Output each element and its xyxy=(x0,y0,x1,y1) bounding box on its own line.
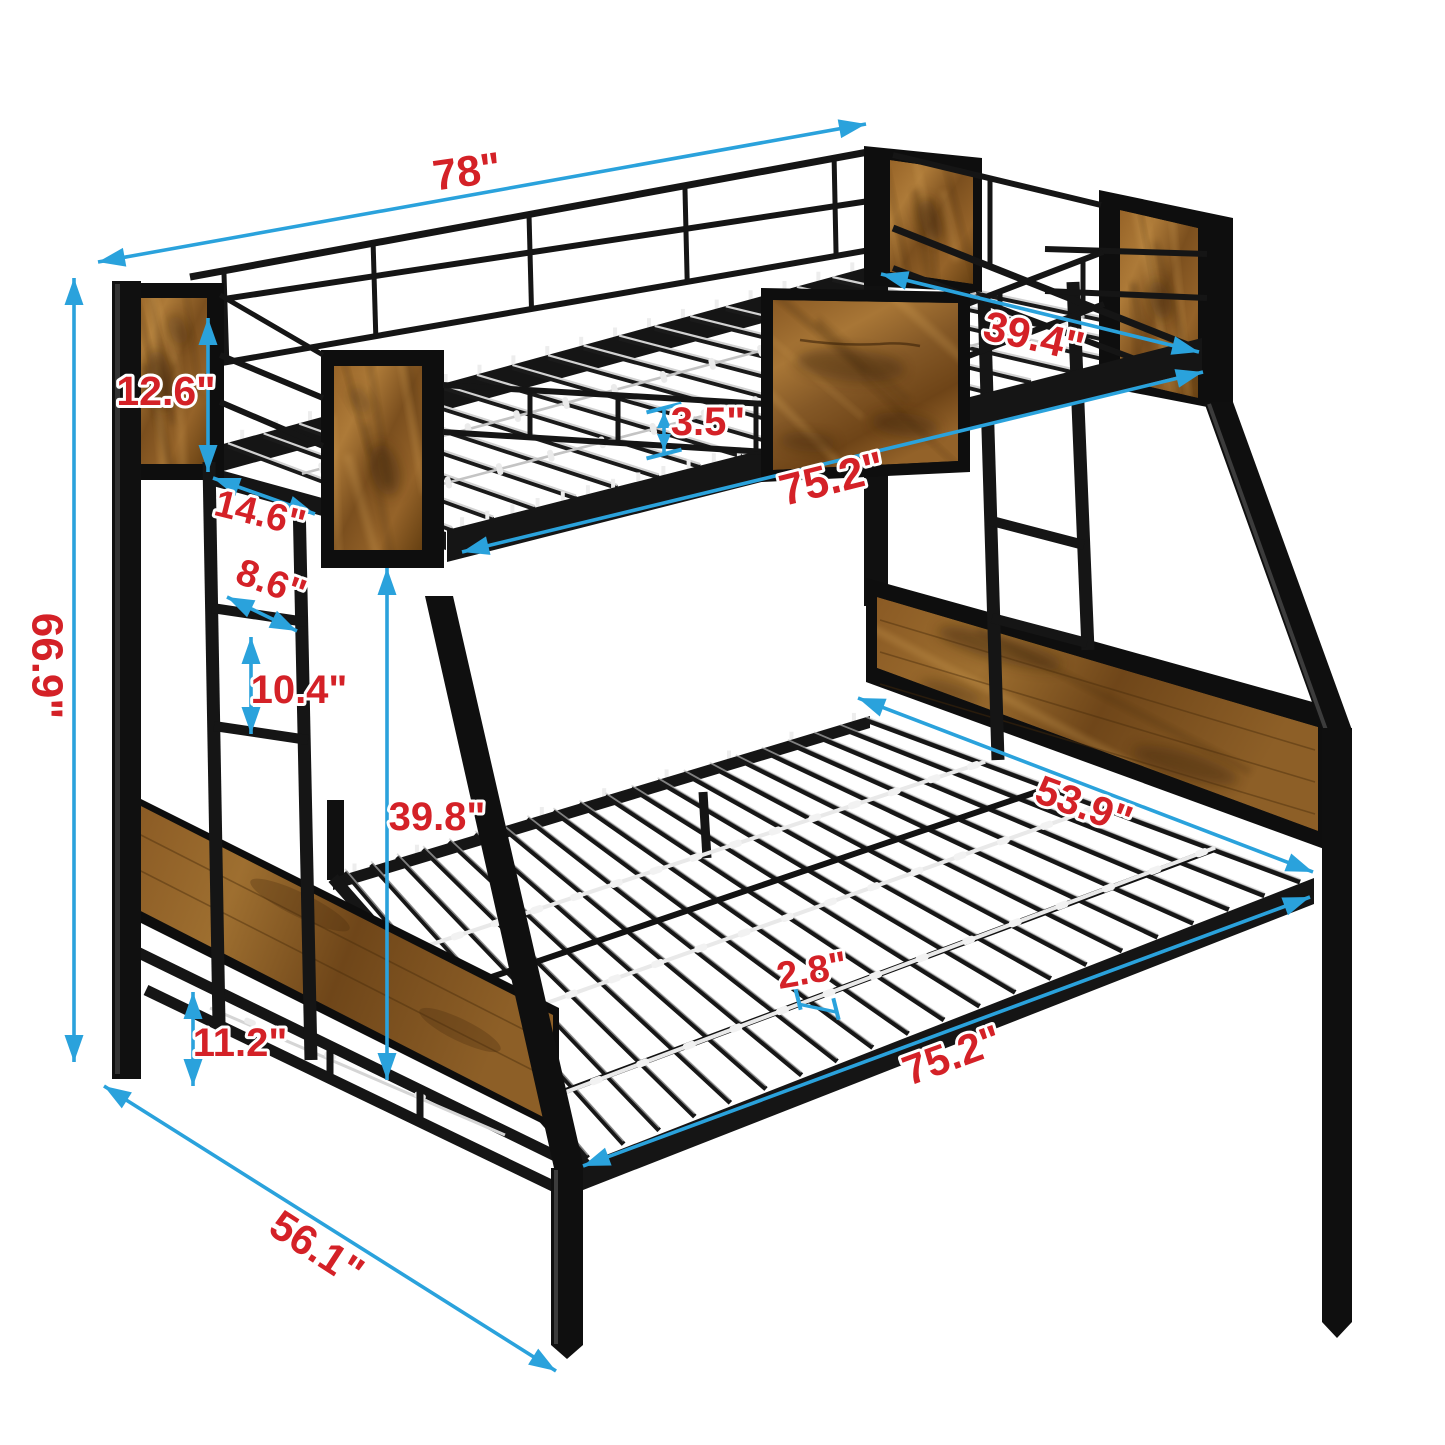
svg-text:66.9": 66.9" xyxy=(23,613,72,720)
svg-text:10.4": 10.4" xyxy=(251,668,348,712)
svg-text:78": 78" xyxy=(430,143,504,200)
svg-text:12.6": 12.6" xyxy=(116,368,215,414)
svg-text:39.8": 39.8" xyxy=(389,795,486,839)
svg-text:11.2": 11.2" xyxy=(193,1021,288,1065)
svg-text:3.5": 3.5" xyxy=(671,400,746,444)
